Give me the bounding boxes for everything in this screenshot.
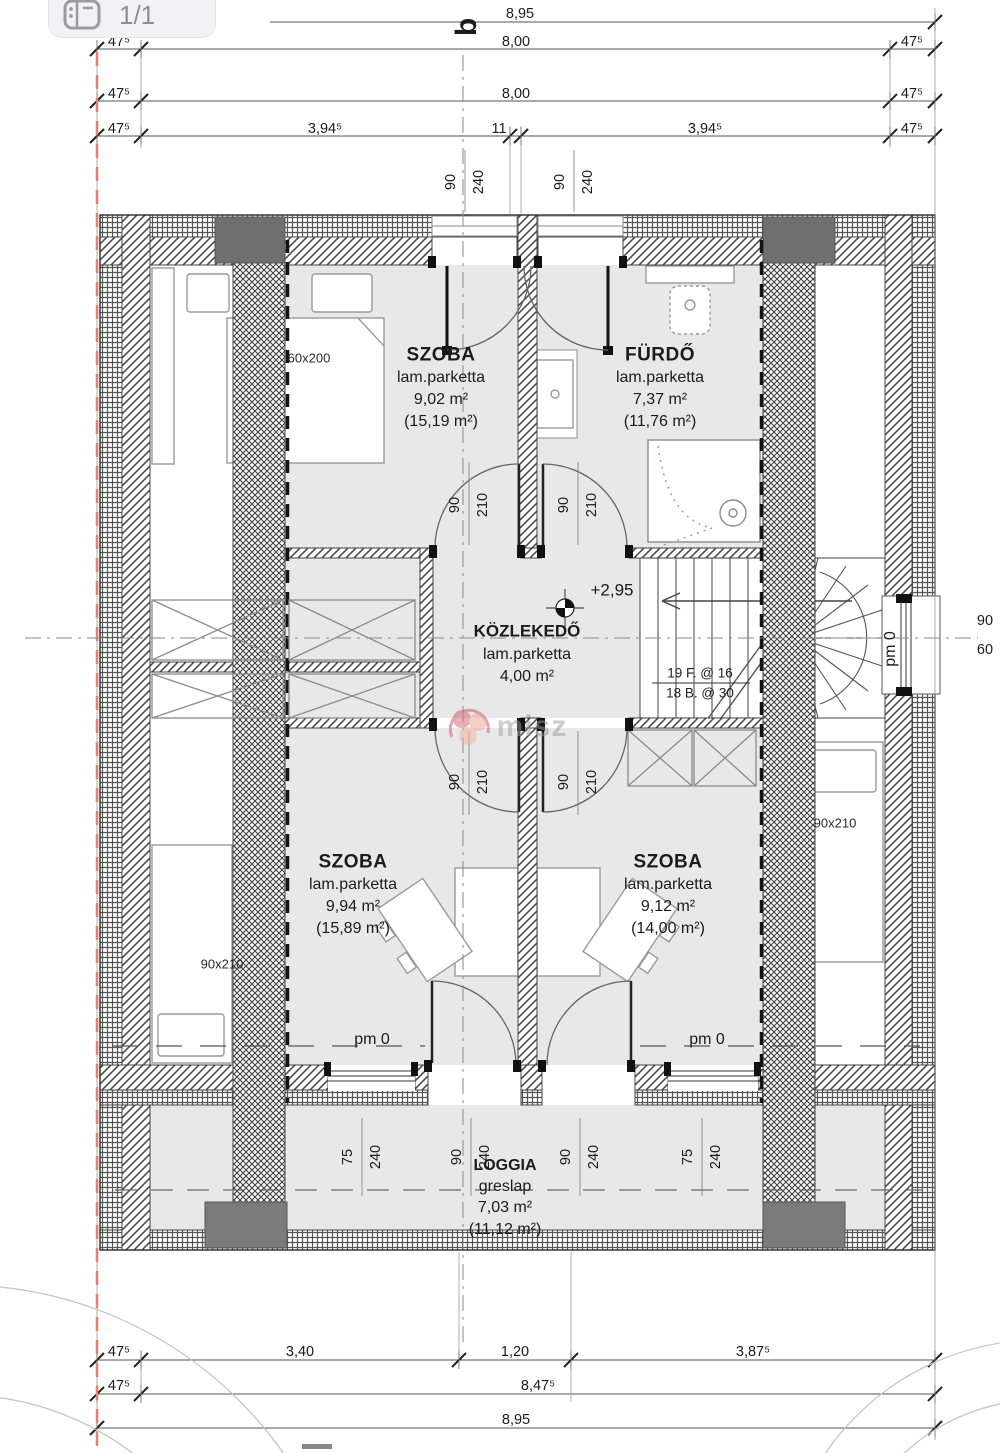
room-kozlekedo-name: KÖZLEKEDŐ [474,623,581,640]
dim-top-row4-3: 3,94⁵ [688,122,722,137]
room-loggia-floor: greslap [479,1179,531,1195]
dim-mid-upper-3: 210 [585,493,600,517]
dim-bottom-wall-6: 75 [681,1149,696,1165]
dim-top-door-right-0: 90 [553,174,568,190]
level-mark-label: +2,95 [590,582,633,599]
room-furdo-gross: (11,76 m²) [624,414,697,430]
dim-bottom-wall-0: 75 [341,1149,356,1165]
dim-bottom-total: 8,95 [502,1413,530,1428]
room-szoba-right-floor: lam.parketta [624,877,712,893]
stair-note-flights: 19 F. @ 16 [667,666,733,680]
bed-size-label-left: 90x210 [201,958,244,971]
room-furdo-area: 7,37 m² [633,392,687,408]
dim-top-door-right-1: 240 [581,170,596,194]
dim-top-row3-2: 47⁵ [901,87,923,102]
dim-top-row4-4: 47⁵ [901,122,923,137]
dim-bottom-row1-0: 47⁵ [108,1345,130,1360]
dim-bottom-row2-0: 47⁵ [108,1379,130,1394]
dim-mid-upper-1: 210 [476,493,491,517]
room-szoba-left-gross: (15,89 m²) [316,921,390,937]
room-furdo-floor: lam.parketta [616,370,704,386]
dim-top-row3-0: 47⁵ [108,87,130,102]
section-marker-b: b [452,18,482,36]
dim-bottom-row1-1: 3,40 [286,1345,314,1360]
room-kozlekedo-floor: lam.parketta [483,647,571,663]
dim-mid-upper-2: 90 [557,497,572,513]
dim-top-door-left-0: 90 [444,174,459,190]
dim-bottom-wall-1: 240 [369,1145,384,1169]
room-szoba-left-area: 9,94 m² [326,899,380,915]
room-szoba-top-name: SZOBA [407,346,476,365]
bed-size-label-right: 90x210 [814,817,857,830]
dim-top-row4-0: 47⁵ [108,122,130,137]
dim-bottom-row1-2: 1,20 [501,1345,529,1360]
dim-top-row4-2: 11 [491,122,506,137]
room-loggia-name: LOGGIA [473,1158,536,1174]
dim-top-row2-2: 47⁵ [901,35,923,50]
room-szoba-top-gross: (15,19 m²) [404,414,478,430]
page-indicator[interactable]: 1/1 [119,0,155,31]
watermark-text: misz [497,712,568,742]
dim-mid-upper-0: 90 [448,497,463,513]
room-szoba-right-gross: (14,00 m²) [631,921,705,937]
room-szoba-right-name: SZOBA [634,853,703,872]
dim-top-row4-1: 3,94⁵ [308,122,342,137]
dim-bottom-wall-7: 240 [709,1145,724,1169]
pages-panel-icon[interactable] [63,0,103,31]
dim-bottom-wall-4: 90 [559,1149,574,1165]
room-szoba-top-floor: lam.parketta [397,370,485,386]
bed-size-label-top: 60x200 [288,352,331,365]
dim-bottom-wall-2: 90 [450,1149,465,1165]
room-szoba-top-area: 9,02 m² [414,392,468,408]
dim-stair-window-h: 60 [977,643,993,658]
room-loggia-gross: (11,12 m²) [469,1222,542,1238]
floor-plan-page: 8,95 b 47⁵ 8,00 47⁵ 47⁵ 8,00 47⁵ 47⁵ 3,9… [0,0,1000,1453]
room-szoba-left-floor: lam.parketta [309,877,397,893]
dim-top-row2-1: 8,00 [502,35,530,50]
dim-top-door-left-1: 240 [472,170,487,194]
room-loggia-area: 7,03 m² [478,1200,532,1216]
dim-bottom-row2-1: 8,47⁵ [521,1379,555,1394]
room-kozlekedo-area: 4,00 m² [500,669,554,685]
dim-mid-lower-1: 210 [476,770,491,794]
dim-mid-lower-0: 90 [448,774,463,790]
dim-mid-lower-3: 210 [585,770,600,794]
pm-label-bottom-right: pm 0 [689,1032,725,1048]
dim-bottom-wall-5: 240 [587,1145,602,1169]
dim-stair-window-w: 90 [977,614,993,629]
pm-label-bottom-left: pm 0 [354,1032,390,1048]
viewer-toolbar[interactable]: 1/1 [48,0,216,38]
dim-bottom-row1-3: 3,87⁵ [736,1345,770,1360]
stair-note-risers: 18 B. @ 30 [666,686,734,700]
room-furdo-name: FÜRDŐ [625,346,695,365]
pm-label-stair-window: pm 0 [883,631,899,667]
dim-top-row3-1: 8,00 [502,87,530,102]
room-szoba-left-name: SZOBA [319,853,388,872]
room-szoba-right-area: 9,12 m² [641,899,695,915]
scale-bar-fragment [302,1444,332,1449]
dim-mid-lower-2: 90 [557,774,572,790]
dim-top-total: 8,95 [506,7,534,22]
